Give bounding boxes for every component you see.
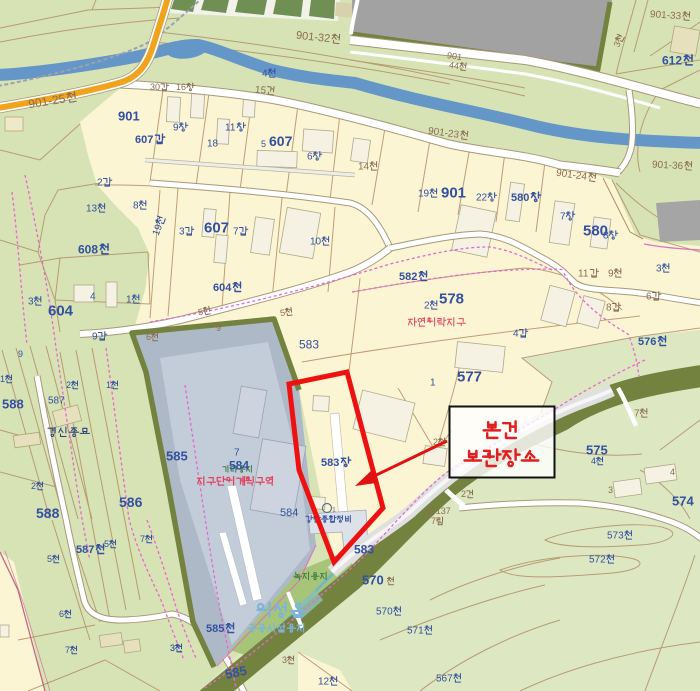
svg-text:572: 572 (589, 555, 606, 566)
svg-text:12: 12 (318, 677, 330, 688)
svg-text:588: 588 (36, 505, 60, 521)
svg-text:1: 1 (430, 378, 436, 389)
svg-text:9: 9 (216, 323, 221, 333)
svg-text:7: 7 (634, 409, 640, 420)
svg-text:612: 612 (662, 53, 682, 67)
svg-text:1: 1 (332, 507, 336, 514)
svg-text:607: 607 (135, 134, 153, 146)
svg-text:577: 577 (457, 368, 482, 385)
svg-text:3: 3 (170, 643, 175, 653)
svg-text:567: 567 (436, 674, 453, 685)
svg-text:10: 10 (310, 237, 322, 248)
svg-text:2: 2 (66, 380, 71, 390)
svg-text:574: 574 (672, 494, 694, 509)
svg-text:608: 608 (78, 242, 98, 256)
svg-text:5: 5 (104, 539, 109, 549)
svg-text:15: 15 (254, 85, 267, 97)
svg-text:604: 604 (48, 302, 74, 319)
svg-text:2: 2 (97, 178, 103, 189)
svg-text:8: 8 (603, 231, 609, 242)
svg-text:6: 6 (307, 152, 313, 163)
svg-text:586: 586 (119, 494, 143, 510)
svg-text:576: 576 (638, 336, 656, 348)
svg-text:585: 585 (206, 623, 224, 635)
svg-text:16: 16 (176, 82, 186, 92)
svg-text:570: 570 (376, 607, 393, 618)
svg-text:19: 19 (418, 189, 430, 200)
svg-text:584: 584 (280, 507, 298, 519)
svg-text:6: 6 (646, 292, 652, 303)
svg-text:8: 8 (133, 201, 139, 212)
svg-text:9: 9 (173, 123, 179, 134)
svg-text:13: 13 (86, 204, 98, 215)
svg-text:44: 44 (448, 60, 459, 71)
svg-text:3: 3 (282, 655, 287, 665)
svg-text:588: 588 (2, 397, 24, 412)
svg-text:3: 3 (656, 264, 662, 275)
svg-text:22: 22 (476, 193, 488, 204)
svg-text:11: 11 (578, 269, 589, 280)
svg-text:571: 571 (407, 626, 424, 637)
svg-text:5: 5 (47, 554, 52, 564)
svg-text:137: 137 (436, 506, 451, 516)
svg-text:604: 604 (213, 282, 232, 294)
svg-text:4: 4 (90, 292, 96, 303)
svg-text:570: 570 (362, 573, 384, 588)
svg-text:9: 9 (18, 349, 23, 359)
svg-text:578: 578 (439, 290, 464, 307)
svg-text:7: 7 (65, 645, 70, 655)
svg-text:7: 7 (431, 516, 436, 526)
svg-text:3: 3 (179, 227, 185, 238)
svg-text:18: 18 (207, 139, 219, 150)
svg-text:901-33: 901-33 (650, 9, 682, 22)
svg-text:582: 582 (399, 271, 417, 283)
svg-text:3: 3 (608, 485, 613, 495)
svg-text:7: 7 (233, 227, 239, 238)
svg-text:901: 901 (118, 109, 140, 124)
svg-text:583: 583 (299, 337, 319, 351)
svg-text:1: 1 (126, 295, 132, 306)
svg-text:5: 5 (261, 139, 266, 149)
svg-text:587: 587 (76, 544, 94, 556)
svg-text:4: 4 (670, 467, 675, 477)
svg-text:6: 6 (59, 609, 64, 619)
svg-text:9: 9 (92, 332, 98, 343)
svg-text:585: 585 (166, 449, 188, 464)
svg-text:607: 607 (269, 133, 293, 149)
svg-text:6: 6 (146, 332, 151, 342)
svg-text:575: 575 (586, 443, 608, 458)
svg-text:573: 573 (607, 531, 624, 542)
svg-text:2: 2 (424, 301, 430, 312)
svg-text:30: 30 (150, 82, 160, 92)
svg-text:584: 584 (229, 458, 249, 472)
svg-text:11: 11 (225, 123, 236, 134)
svg-text:587: 587 (48, 396, 65, 407)
svg-text:583: 583 (354, 542, 374, 556)
svg-text:2: 2 (31, 481, 36, 491)
svg-text:4: 4 (262, 69, 268, 80)
svg-text:1: 1 (0, 374, 5, 384)
svg-text:7: 7 (140, 534, 145, 544)
svg-text:7: 7 (560, 212, 566, 223)
svg-text:4: 4 (591, 456, 596, 466)
svg-text:2: 2 (461, 489, 466, 499)
svg-text:3: 3 (28, 297, 34, 308)
svg-text:9: 9 (608, 269, 614, 280)
svg-text:4: 4 (513, 329, 519, 340)
svg-text:901-36: 901-36 (652, 160, 684, 173)
svg-text:8: 8 (606, 303, 612, 314)
svg-text:14: 14 (358, 162, 370, 173)
svg-text:7: 7 (234, 448, 240, 459)
svg-text:583: 583 (321, 457, 339, 469)
svg-text:607: 607 (204, 219, 229, 236)
svg-text:1: 1 (106, 380, 111, 390)
svg-text:901: 901 (441, 184, 466, 201)
svg-text:580: 580 (511, 192, 529, 204)
